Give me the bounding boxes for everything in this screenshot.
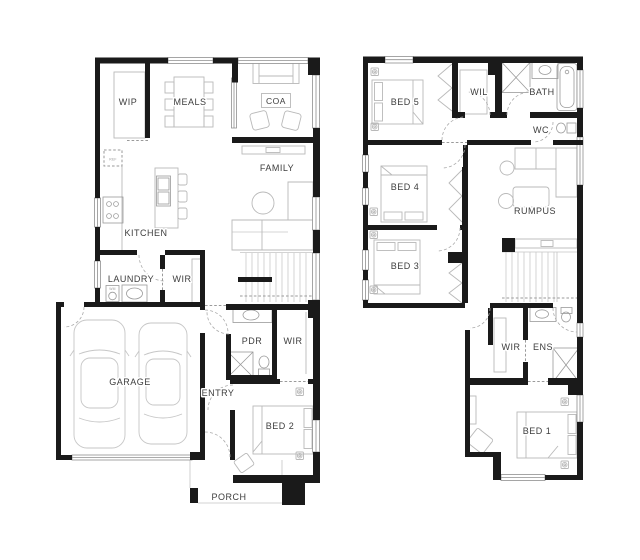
room-label-porch: PORCH — [211, 492, 246, 502]
room-label-rumpus: RUMPUS — [514, 206, 556, 216]
stairs-first — [502, 252, 577, 302]
room-label-pdr: PDR — [242, 336, 263, 346]
first-floor-plan: BED 5 WIL BATH WC BED 4 RUMPUS BED 3 WIR… — [363, 57, 584, 481]
ground-furniture: REF WM — [70, 63, 313, 504]
room-label-coa: COA — [266, 96, 286, 106]
ground-doors — [64, 141, 308, 458]
room-label-wir-bed2: WIR — [284, 336, 303, 346]
room-label-wir: WIR — [502, 342, 521, 352]
room-label-bed4: BED 4 — [391, 182, 420, 192]
room-label-ens: ENS — [533, 342, 553, 352]
room-label-meals: MEALS — [173, 97, 206, 107]
washer-label: WM — [109, 287, 115, 291]
first-doors — [437, 92, 577, 382]
room-label-wc: WC — [533, 125, 549, 135]
room-label-kitchen: KITCHEN — [124, 228, 167, 238]
floor-plan-canvas: REF WM — [0, 0, 640, 560]
room-label-bed5: BED 5 — [391, 97, 420, 107]
ground-labels: WIP MEALS COA FAMILY KITCHEN LAUNDRY WIR… — [108, 94, 303, 503]
downlight-icon — [296, 388, 304, 460]
room-label-wip: WIP — [119, 97, 138, 107]
room-label-wir-laundry: WIR — [173, 274, 192, 284]
room-label-laundry: LAUNDRY — [108, 274, 154, 284]
room-label-bath: BATH — [529, 87, 554, 97]
room-label-bed2: BED 2 — [266, 421, 295, 431]
room-label-family: FAMILY — [260, 163, 294, 173]
room-label-bed3: BED 3 — [391, 261, 420, 271]
room-label-entry: ENTRY — [202, 388, 235, 398]
room-label-bed1: BED 1 — [523, 426, 552, 436]
ground-floor-plan: REF WM — [56, 58, 320, 506]
room-label-wil: WIL — [470, 87, 488, 97]
fridge-label: REF — [109, 158, 116, 162]
room-label-garage: GARAGE — [109, 377, 151, 387]
